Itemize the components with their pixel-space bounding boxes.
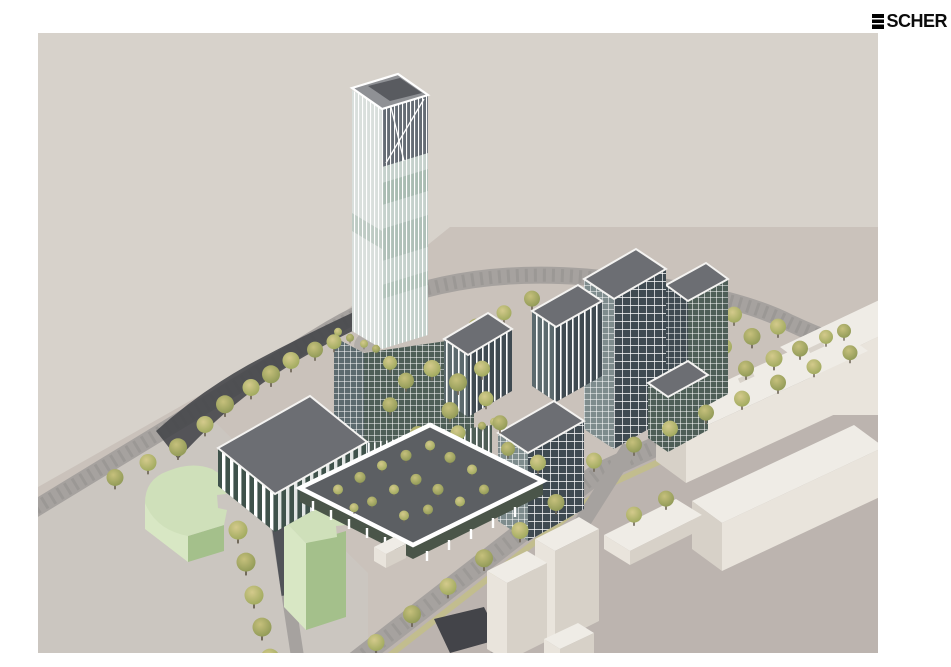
logo-text: SCHER — [886, 11, 947, 32]
architectural-rendering — [38, 33, 878, 653]
page: SCHER — [0, 0, 951, 667]
site-plan-scene — [38, 33, 878, 653]
escher-logo: SCHER — [872, 11, 947, 32]
tower-shaft — [352, 90, 428, 349]
logo-block-e-icon — [872, 14, 884, 29]
